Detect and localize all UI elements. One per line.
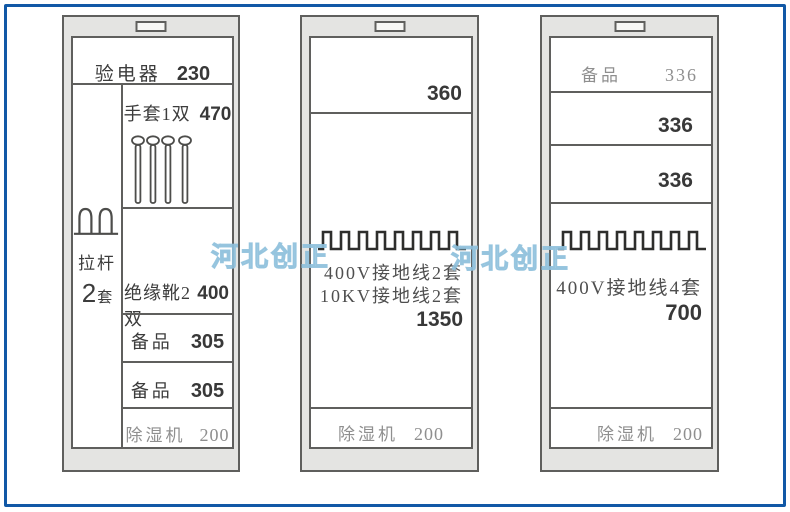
shelf-divider (551, 144, 711, 146)
shelf-divider (551, 91, 711, 93)
shelf-label: 验电器 (95, 59, 161, 86)
shelf-divider (123, 407, 232, 409)
dehumidifier-dimension: 200 (200, 425, 230, 446)
top-shelf-dimension: 360 (427, 82, 462, 106)
shelf-divider (311, 112, 471, 114)
shelf-spare-top: 备品 336 (551, 61, 711, 86)
dehumidifier-label: 除湿机 (338, 420, 398, 445)
grounding-section: 400V接地线4套 700 (551, 277, 702, 325)
shelf-boots: 绝缘靴2双 400 (123, 279, 232, 331)
boots-label: 绝缘靴2双 (124, 279, 197, 331)
shelf-spare-1: 备品 305 (123, 328, 232, 354)
shelf-divider (551, 407, 711, 409)
watermark: 河北创正 (211, 235, 331, 274)
cabinet-1-handle-icon (136, 21, 167, 32)
grounding-clamps-icon (557, 229, 707, 251)
shelf-3: 336 (551, 169, 711, 193)
dehumidifier-label: 除湿机 (126, 421, 186, 446)
dehumidifier-dimension: 200 (414, 424, 444, 445)
pull-rod-label-row: 拉杆 (73, 249, 121, 274)
shelf-divider (123, 313, 232, 315)
shelf-2: 336 (551, 114, 711, 138)
spare-label: 备品 (131, 328, 173, 354)
gloves-label: 手套1双 (124, 100, 191, 126)
grounding-line-1: 400V接地线4套 (551, 277, 702, 301)
cabinet-3-handle-icon (614, 21, 645, 32)
shelf-dimension: 336 (658, 169, 693, 193)
hanging-rods-icon (131, 135, 193, 205)
cabinet-2-interior: 360 400V接地线2套 10KV接地线2套 1350 除湿机 200 (309, 36, 473, 449)
spare-dimension: 336 (665, 65, 698, 86)
shelf-divider (123, 361, 232, 363)
cabinet-1-interior: 验电器 230 拉杆 2 套 (71, 36, 234, 449)
spare-label: 备品 (581, 61, 621, 86)
watermark: 河北创正 (451, 237, 571, 276)
pull-rod-qty-unit: 套 (97, 286, 112, 307)
shelf-dehumidifier: 除湿机 200 (311, 420, 471, 445)
grounding-dimension: 1350 (311, 308, 463, 331)
shelf-electroscope: 验电器 230 (73, 59, 232, 86)
spare-label: 备品 (131, 377, 173, 403)
grounding-clamps-icon (317, 229, 467, 251)
cabinet-2-handle-icon (374, 21, 405, 32)
pull-rod-hooks-icon (73, 204, 119, 236)
shelf-dehumidifier: 除湿机 200 (551, 420, 711, 445)
shelf-divider (311, 407, 471, 409)
shelf-spare-2: 备品 305 (123, 377, 232, 403)
pull-rod-qty-row: 2 套 (73, 278, 121, 309)
cabinet-3-interior: 备品 336 336 336 400V接地线4套 700 除湿机 (549, 36, 713, 449)
spare-dimension: 305 (191, 331, 224, 354)
shelf-top: 360 (311, 82, 471, 106)
cabinet-layout-diagram: 验电器 230 拉杆 2 套 (0, 0, 790, 512)
dehumidifier-label: 除湿机 (597, 420, 657, 445)
grounding-line-1: 400V接地线2套 (311, 262, 463, 285)
gloves-dimension: 470 (200, 104, 232, 126)
shelf-divider (123, 207, 232, 209)
spare-dimension: 305 (191, 380, 224, 403)
pull-rod-column: 拉杆 2 套 (73, 83, 121, 447)
dehumidifier-dimension: 200 (673, 424, 703, 445)
shelf-divider (551, 202, 711, 204)
pull-rod-label: 拉杆 (78, 249, 116, 274)
grounding-section: 400V接地线2套 10KV接地线2套 1350 (311, 262, 463, 331)
grounding-dimension: 700 (551, 301, 702, 325)
boots-dimension: 400 (197, 283, 229, 305)
shelf-dehumidifier: 除湿机 200 (123, 421, 232, 446)
shelf-gloves: 手套1双 470 (123, 100, 232, 126)
grounding-line-2: 10KV接地线2套 (311, 285, 463, 308)
pull-rod-qty-number: 2 (82, 278, 96, 309)
shelf-dimension: 336 (658, 114, 693, 138)
